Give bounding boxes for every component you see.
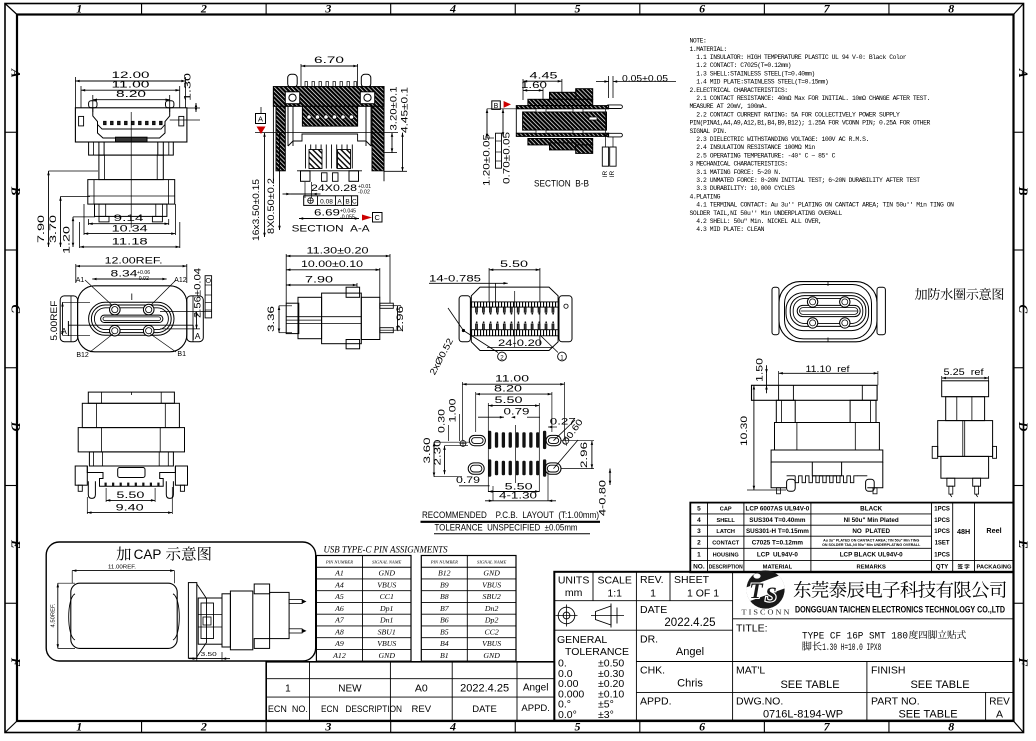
svg-text:IR: IR bbox=[609, 170, 616, 177]
svg-text:2: 2 bbox=[200, 2, 207, 16]
svg-text:B6: B6 bbox=[440, 616, 449, 625]
svg-text:0.70±0.05: 0.70±0.05 bbox=[502, 132, 512, 184]
svg-text:1.50: 1.50 bbox=[755, 358, 765, 382]
svg-text:3.50: 3.50 bbox=[201, 652, 217, 658]
svg-text:NEW: NEW bbox=[338, 684, 362, 695]
svg-text:4-1.30: 4-1.30 bbox=[499, 490, 537, 501]
svg-text:T I S C O N N: T I S C O N N bbox=[742, 610, 790, 617]
svg-text:Angel: Angel bbox=[523, 683, 549, 694]
svg-text:A: A bbox=[1016, 68, 1031, 78]
svg-text:5: 5 bbox=[697, 506, 701, 513]
svg-text:0.0°: 0.0° bbox=[558, 709, 577, 721]
svg-text:PART NO.: PART NO. bbox=[871, 696, 920, 708]
svg-text:14-0.785: 14-0.785 bbox=[429, 274, 481, 284]
svg-text:8.20: 8.20 bbox=[116, 89, 146, 100]
svg-text:Reel: Reel bbox=[986, 526, 1001, 535]
svg-text:DWG.NO.: DWG.NO. bbox=[736, 696, 783, 708]
svg-text:GND: GND bbox=[483, 569, 500, 578]
svg-text:2.96: 2.96 bbox=[578, 442, 589, 468]
svg-text:4.1 TERMINAL CONTACT: Au 3u'': 4.1 TERMINAL CONTACT: Au 3u'' PLATING ON… bbox=[690, 202, 955, 209]
svg-text:DATE: DATE bbox=[472, 704, 497, 715]
svg-text:PIN NUMBER: PIN NUMBER bbox=[325, 560, 353, 565]
svg-text:SEE TABLE: SEE TABLE bbox=[780, 679, 839, 691]
svg-text:MATERIAL: MATERIAL bbox=[763, 565, 793, 571]
svg-text:Dp1: Dp1 bbox=[379, 604, 394, 613]
svg-text:C: C bbox=[374, 213, 380, 222]
svg-text:VBUS: VBUS bbox=[482, 639, 501, 648]
svg-text:1: 1 bbox=[76, 2, 82, 16]
svg-text:1.20±0.05: 1.20±0.05 bbox=[482, 134, 492, 186]
svg-text:RECOMMENDED P.C.B. LAYOUT: RECOMMENDED P.C.B. LAYOUT (T:1.00mm) bbox=[422, 510, 599, 521]
svg-text:8.20: 8.20 bbox=[494, 383, 522, 394]
svg-text:SEE TABLE: SEE TABLE bbox=[898, 709, 957, 721]
svg-text:LCP BLACK UL94V-0: LCP BLACK UL94V-0 bbox=[840, 552, 903, 559]
svg-text:4.3 MID PLATE: CLEAN: 4.3 MID PLATE: CLEAN bbox=[690, 226, 765, 233]
svg-text:APPD.: APPD. bbox=[640, 696, 672, 708]
svg-text:5.25 ref: 5.25 ref bbox=[944, 366, 984, 377]
svg-text:1 OF 1: 1 OF 1 bbox=[687, 588, 719, 600]
svg-text:A: A bbox=[337, 198, 342, 205]
svg-text:ON SOLDER TAIL,NI 50u" Min UND: ON SOLDER TAIL,NI 50u" Min UNDERPLATING … bbox=[822, 543, 921, 547]
svg-text:NOTE:: NOTE: bbox=[690, 38, 707, 45]
svg-text:DONGGUAN TAICHEN ELECTRONICS T: DONGGUAN TAICHEN ELECTRONICS TECHNOLOGY … bbox=[795, 605, 1005, 616]
svg-text:3.1 MATING FORCE: 5~20 N.: 3.1 MATING FORCE: 5~20 N. bbox=[690, 169, 781, 176]
svg-text:5.50: 5.50 bbox=[495, 395, 523, 406]
svg-text:2.2 CONTACT CURRENT RATING: 5A: 2.2 CONTACT CURRENT RATING: 5A FOR COLLE… bbox=[690, 111, 900, 118]
svg-text:3 MECHANICAL CHARACTERISTICS:: 3 MECHANICAL CHARACTERISTICS: bbox=[690, 161, 788, 168]
svg-text:2.3 DIELECTRIC WITHSTANDING VO: 2.3 DIELECTRIC WITHSTANDING VOLTAGE: 100… bbox=[690, 136, 869, 143]
svg-text:REV: REV bbox=[412, 704, 432, 715]
svg-text:1.30 H=10.0 IPX8: 1.30 H=10.0 IPX8 bbox=[822, 643, 881, 654]
svg-text:C7025 T=0.12mm: C7025 T=0.12mm bbox=[752, 540, 804, 547]
svg-text:CONTACT: CONTACT bbox=[712, 541, 740, 547]
svg-text:B9: B9 bbox=[440, 580, 449, 589]
svg-text:A0: A0 bbox=[415, 683, 428, 695]
svg-text:1.1 INSULATOR: HIGH TEMPERATUR: 1.1 INSULATOR: HIGH TEMPERATURE PLASTIC … bbox=[690, 54, 907, 61]
svg-text:1.4 MID PLATE:STAINLESS STEEL(: 1.4 MID PLATE:STAINLESS STEEL(T=0.15mm) bbox=[690, 79, 829, 86]
svg-text:FINISH: FINISH bbox=[871, 665, 905, 677]
svg-text:LCP 6007AS UL94V-0: LCP 6007AS UL94V-0 bbox=[746, 506, 810, 513]
svg-text:MEASURE AT 20mV, 100mA.: MEASURE AT 20mV, 100mA. bbox=[690, 103, 768, 110]
svg-text:9.40: 9.40 bbox=[116, 502, 144, 513]
svg-text:11.00REF.: 11.00REF. bbox=[108, 565, 137, 571]
svg-text:11.18: 11.18 bbox=[112, 237, 148, 248]
svg-text:Angel: Angel bbox=[676, 646, 704, 658]
svg-text:0.08: 0.08 bbox=[320, 198, 333, 205]
svg-text:CHK.: CHK. bbox=[640, 665, 665, 677]
svg-text:A: A bbox=[996, 709, 1003, 721]
svg-text:mm: mm bbox=[565, 587, 583, 599]
svg-text:8: 8 bbox=[948, 720, 954, 734]
svg-text:REV.: REV. bbox=[640, 574, 664, 586]
svg-text:USB TYPE-C PIN ASSIGNMENTS: USB TYPE-C PIN ASSIGNMENTS bbox=[324, 546, 448, 556]
svg-text:SIGNAL NAME: SIGNAL NAME bbox=[477, 560, 506, 565]
svg-text:10.30: 10.30 bbox=[738, 416, 749, 446]
svg-text:48H: 48H bbox=[957, 527, 970, 536]
svg-text:TOLERANCE UNSPECIFIED ±0.05m: TOLERANCE UNSPECIFIED ±0.05mm bbox=[435, 522, 578, 533]
svg-text:E: E bbox=[1016, 539, 1031, 549]
svg-text:A: A bbox=[195, 331, 201, 341]
svg-text:1: 1 bbox=[650, 588, 656, 600]
svg-text:3.3 DURABILITY: 10,000 CYCLES: 3.3 DURABILITY: 10,000 CYCLES bbox=[690, 185, 796, 192]
svg-text:QTY: QTY bbox=[936, 565, 948, 571]
svg-text:1.20: 1.20 bbox=[62, 226, 73, 254]
svg-text:-0.02: -0.02 bbox=[137, 276, 149, 282]
svg-text:SBU2: SBU2 bbox=[483, 592, 501, 601]
svg-text:B5: B5 bbox=[440, 627, 449, 636]
svg-text:Au 3u" PLATED ON CANTACT AREA;: Au 3u" PLATED ON CANTACT AREA; TIN 50u" … bbox=[823, 538, 919, 542]
svg-text:3.20±0.1: 3.20±0.1 bbox=[389, 87, 399, 131]
svg-text:C: C bbox=[1016, 305, 1031, 314]
svg-text:Dn1: Dn1 bbox=[379, 616, 394, 625]
svg-text:SECTION B-B: SECTION B-B bbox=[534, 179, 589, 189]
svg-text:CAP: CAP bbox=[720, 507, 732, 513]
svg-text:5.50: 5.50 bbox=[116, 490, 144, 501]
svg-text:A7: A7 bbox=[334, 616, 345, 625]
svg-text:TITLE:: TITLE: bbox=[736, 623, 768, 635]
svg-text:4.2 SHELL: 50u" Min. NICKEL AL: 4.2 SHELL: 50u" Min. NICKEL ALL OVER, bbox=[690, 218, 822, 225]
svg-text:1PCS: 1PCS bbox=[934, 518, 950, 524]
svg-text:SHELL: SHELL bbox=[717, 518, 736, 524]
svg-text:2.5 OPERATING TEMPERATURE: -40: 2.5 OPERATING TEMPERATURE: -40° C ~ 85° … bbox=[690, 151, 836, 159]
svg-text:BLACK: BLACK bbox=[860, 506, 882, 513]
svg-text:B: B bbox=[345, 198, 349, 205]
svg-text:1.2 CONTACT: C7025(T=0.12mm): 1.2 CONTACT: C7025(T=0.12mm) bbox=[690, 62, 792, 69]
svg-text:A4: A4 bbox=[334, 580, 344, 589]
svg-text:8.34: 8.34 bbox=[111, 269, 139, 280]
svg-text:0.05±0.05: 0.05±0.05 bbox=[622, 74, 668, 85]
svg-text:3: 3 bbox=[324, 2, 331, 16]
svg-text:DATE: DATE bbox=[640, 604, 667, 616]
svg-text:6.69: 6.69 bbox=[314, 208, 340, 219]
svg-text:SEE TABLE: SEE TABLE bbox=[910, 679, 969, 691]
svg-text:1: 1 bbox=[560, 354, 564, 361]
svg-text:1: 1 bbox=[285, 684, 291, 695]
svg-text:Dn2: Dn2 bbox=[484, 604, 499, 613]
svg-text:8: 8 bbox=[948, 2, 954, 16]
svg-text:3: 3 bbox=[697, 528, 701, 535]
svg-text:NO.: NO. bbox=[693, 564, 705, 571]
svg-text:ECN NO.: ECN NO. bbox=[268, 704, 308, 714]
svg-text:2022.4.25: 2022.4.25 bbox=[460, 683, 509, 695]
svg-text:2.4 INSULATION RESISTANCE 100M: 2.4 INSULATION RESISTANCE 100MΩ Min bbox=[690, 144, 816, 151]
svg-text:B8: B8 bbox=[440, 592, 449, 601]
svg-text:3.36: 3.36 bbox=[265, 306, 276, 332]
svg-text:4.45±0.1: 4.45±0.1 bbox=[400, 87, 410, 133]
svg-text:NI 50u" Min Plated: NI 50u" Min Plated bbox=[844, 517, 899, 524]
svg-text:Dp2: Dp2 bbox=[484, 616, 499, 625]
svg-text:CAP: CAP bbox=[134, 547, 162, 562]
svg-text:E: E bbox=[9, 539, 24, 549]
svg-text:C: C bbox=[9, 305, 24, 314]
svg-text:VBUS: VBUS bbox=[377, 580, 396, 589]
svg-text:B7: B7 bbox=[440, 604, 450, 613]
svg-text:NO PLATED: NO PLATED bbox=[852, 528, 890, 535]
svg-text:GENERAL: GENERAL bbox=[557, 634, 607, 646]
svg-text:2: 2 bbox=[697, 540, 701, 547]
svg-text:2.ELECTRICAL CHARACTERISTICS:: 2.ELECTRICAL CHARACTERISTICS: bbox=[690, 87, 788, 94]
svg-text:VBUS: VBUS bbox=[482, 580, 501, 589]
svg-text:1SET: 1SET bbox=[935, 541, 950, 547]
svg-text:A12: A12 bbox=[332, 651, 346, 660]
svg-text:A: A bbox=[258, 114, 263, 123]
svg-text:0.30: 0.30 bbox=[437, 409, 447, 433]
svg-text:PACKAGING: PACKAGING bbox=[977, 565, 1012, 571]
svg-text:SIGNAL PIN.: SIGNAL PIN. bbox=[690, 128, 727, 135]
svg-text:TOLERANCE: TOLERANCE bbox=[565, 646, 629, 658]
svg-text:T: T bbox=[749, 578, 764, 603]
svg-text:0.79: 0.79 bbox=[456, 474, 480, 485]
svg-text:SUS301-H T=0.15mm: SUS301-H T=0.15mm bbox=[746, 528, 809, 535]
svg-text:ECN DESCRIPTION: ECN DESCRIPTION bbox=[321, 704, 402, 714]
svg-text:4: 4 bbox=[449, 720, 456, 734]
svg-text:1.3 SHELL:STAINLESS STEEL(T=0.: 1.3 SHELL:STAINLESS STEEL(T=0.40mm) bbox=[690, 70, 815, 77]
svg-text:VBUS: VBUS bbox=[377, 639, 396, 648]
svg-text:4.PLATING: 4.PLATING bbox=[690, 193, 721, 200]
svg-text:SECTION A-A: SECTION A-A bbox=[292, 223, 371, 234]
svg-text:PIN(PINA1,A4,A9,A12,B1,B4,B9,B: PIN(PINA1,A4,A9,A12,B1,B4,B9,B12); 1.25A… bbox=[690, 120, 931, 127]
svg-text:7: 7 bbox=[824, 720, 831, 734]
svg-text:5: 5 bbox=[575, 2, 581, 16]
svg-text:A: A bbox=[9, 68, 24, 78]
svg-text:1.30: 1.30 bbox=[183, 73, 194, 101]
svg-text:C: C bbox=[352, 198, 357, 205]
svg-text:SBU1: SBU1 bbox=[378, 627, 396, 636]
svg-text:2.1 CONTACT RESISTANCE: 40mΩ M: 2.1 CONTACT RESISTANCE: 40mΩ Max FOR INI… bbox=[690, 95, 930, 102]
svg-text:LATCH: LATCH bbox=[716, 529, 735, 535]
svg-text:8X0.50±0.2: 8X0.50±0.2 bbox=[266, 178, 276, 234]
svg-text:GND: GND bbox=[379, 651, 396, 660]
svg-text:SHEET: SHEET bbox=[674, 574, 710, 586]
svg-text:B12: B12 bbox=[76, 352, 89, 359]
svg-text:7.90: 7.90 bbox=[305, 274, 333, 285]
svg-text:1: 1 bbox=[76, 720, 82, 734]
svg-text:DR.: DR. bbox=[640, 634, 658, 646]
svg-text:F: F bbox=[1016, 657, 1031, 667]
svg-text:1.MATERIAL:: 1.MATERIAL: bbox=[690, 46, 727, 53]
svg-text:1.00: 1.00 bbox=[448, 399, 458, 423]
svg-text:3: 3 bbox=[324, 720, 331, 734]
svg-text:7: 7 bbox=[824, 2, 831, 16]
svg-text:B: B bbox=[9, 186, 24, 196]
svg-text:24X0.28: 24X0.28 bbox=[311, 183, 357, 194]
svg-text:7.90: 7.90 bbox=[36, 215, 47, 243]
svg-text:GND: GND bbox=[483, 651, 500, 660]
svg-text:MAT'L: MAT'L bbox=[736, 665, 765, 677]
svg-text:A1: A1 bbox=[334, 569, 344, 578]
svg-text:B: B bbox=[1016, 186, 1031, 196]
svg-text:SIGNAL NAME: SIGNAL NAME bbox=[372, 560, 401, 565]
svg-text:11.30±0.20: 11.30±0.20 bbox=[307, 245, 369, 256]
svg-text:10.34: 10.34 bbox=[112, 223, 149, 234]
svg-text:A5: A5 bbox=[334, 592, 344, 601]
svg-text:A8: A8 bbox=[334, 627, 344, 636]
svg-text:0.79: 0.79 bbox=[504, 406, 530, 417]
svg-text:REV: REV bbox=[989, 697, 1010, 708]
svg-text:CC1: CC1 bbox=[380, 592, 394, 601]
svg-text:6: 6 bbox=[699, 2, 705, 16]
svg-text:24-0.20: 24-0.20 bbox=[498, 338, 542, 348]
svg-text:3.2 UNMATED FORCE: 8~20N INITI: 3.2 UNMATED FORCE: 8~20N INITIAL TEST; 6… bbox=[690, 177, 921, 184]
svg-text:4: 4 bbox=[449, 2, 456, 16]
svg-text:REMARKS: REMARKS bbox=[857, 565, 886, 571]
svg-text:12.00REF.: 12.00REF. bbox=[105, 256, 163, 267]
svg-text:UNITS: UNITS bbox=[558, 575, 590, 587]
svg-text:F: F bbox=[9, 657, 24, 667]
svg-text:1:1: 1:1 bbox=[607, 588, 622, 600]
svg-text:2022.4.25: 2022.4.25 bbox=[664, 617, 715, 629]
svg-text:A9: A9 bbox=[334, 639, 344, 648]
svg-text:16x3.50±0.15: 16x3.50±0.15 bbox=[251, 179, 261, 241]
svg-text:B12: B12 bbox=[438, 569, 451, 578]
svg-text:6.70: 6.70 bbox=[314, 55, 344, 66]
svg-text:2.96: 2.96 bbox=[394, 306, 405, 332]
svg-text:2: 2 bbox=[200, 720, 207, 734]
svg-text:LCP UL94V-0: LCP UL94V-0 bbox=[757, 552, 798, 559]
svg-text:PIN NUMBER: PIN NUMBER bbox=[430, 560, 458, 565]
svg-text:5: 5 bbox=[575, 720, 581, 734]
svg-text:B1: B1 bbox=[177, 351, 186, 358]
svg-text:A6: A6 bbox=[334, 604, 344, 613]
svg-text:S: S bbox=[765, 583, 777, 607]
svg-text:6: 6 bbox=[699, 720, 705, 734]
svg-text:SOLDER TAIL,NI 50u'' Min UNDER: SOLDER TAIL,NI 50u'' Min UNDERPLATING OV… bbox=[690, 210, 843, 217]
svg-text:2: 2 bbox=[500, 354, 504, 361]
svg-text:3.60: 3.60 bbox=[421, 438, 432, 464]
svg-text:D: D bbox=[1016, 421, 1031, 432]
svg-text:SCALE: SCALE bbox=[597, 575, 631, 587]
svg-text:5.50: 5.50 bbox=[500, 259, 528, 270]
svg-text:4.50REF.: 4.50REF. bbox=[51, 603, 57, 627]
svg-text:-0.02: -0.02 bbox=[358, 190, 370, 196]
svg-text:5.00REF: 5.00REF bbox=[49, 300, 59, 341]
svg-text:B1: B1 bbox=[440, 651, 449, 660]
svg-text:B4: B4 bbox=[440, 639, 449, 648]
svg-text:1: 1 bbox=[697, 552, 701, 559]
svg-text:2.30: 2.30 bbox=[432, 440, 443, 466]
svg-text:-0.055: -0.055 bbox=[340, 215, 355, 221]
svg-text:2.56±0.04: 2.56±0.04 bbox=[192, 268, 203, 318]
svg-text:DESCRIPTION: DESCRIPTION bbox=[709, 565, 743, 571]
svg-text:TYPE CF 16P SMT 180: TYPE CF 16P SMT 180 bbox=[802, 631, 908, 642]
svg-text:IR: IR bbox=[602, 170, 609, 177]
svg-text:10.00±0.10: 10.00±0.10 bbox=[301, 259, 363, 270]
svg-text:CC2: CC2 bbox=[484, 627, 498, 636]
svg-text:SUS304 T=0.40mm: SUS304 T=0.40mm bbox=[749, 517, 806, 524]
svg-text:±3°: ±3° bbox=[598, 709, 614, 721]
svg-text:3.70: 3.70 bbox=[48, 215, 59, 243]
svg-text:11.10 ref: 11.10 ref bbox=[806, 363, 850, 374]
svg-text:1PCS: 1PCS bbox=[934, 553, 950, 559]
svg-text:0716L-8194-WP: 0716L-8194-WP bbox=[763, 709, 843, 721]
svg-text:Chris: Chris bbox=[677, 678, 703, 690]
svg-text:HOUSING: HOUSING bbox=[713, 553, 739, 559]
svg-text:A1: A1 bbox=[76, 277, 85, 284]
svg-text:4: 4 bbox=[697, 517, 701, 524]
svg-text:D: D bbox=[9, 421, 24, 432]
svg-text:APPD.: APPD. bbox=[521, 703, 550, 714]
svg-text:1PCS: 1PCS bbox=[934, 507, 950, 513]
svg-text:GND: GND bbox=[379, 569, 396, 578]
svg-text:1PCS: 1PCS bbox=[934, 529, 950, 535]
